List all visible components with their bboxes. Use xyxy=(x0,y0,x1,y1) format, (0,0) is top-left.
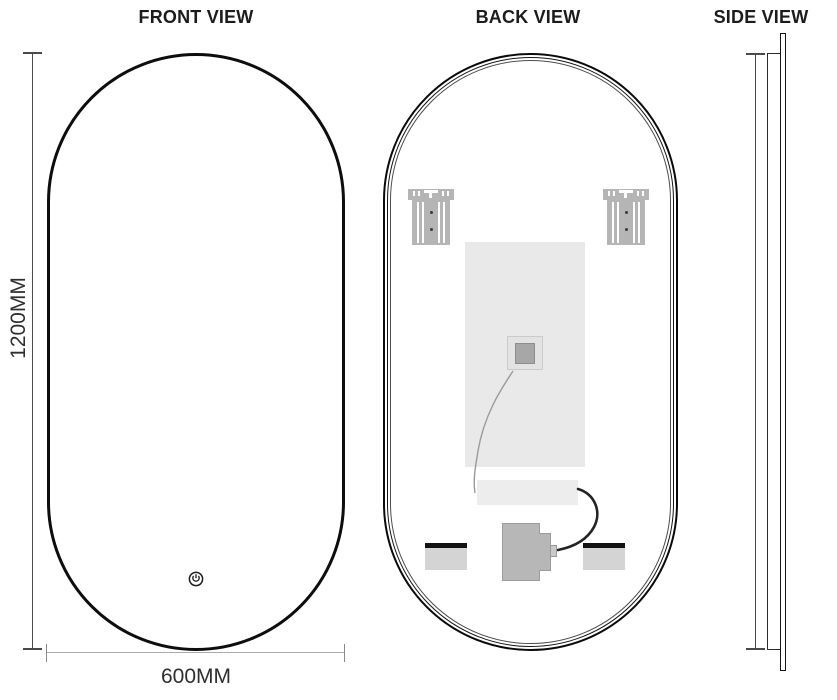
width-dimension-tick-left xyxy=(46,644,47,662)
power-icon xyxy=(188,571,204,587)
side-dimension-cap-bottom xyxy=(746,648,765,650)
side-view-title: SIDE VIEW xyxy=(714,7,809,28)
side-dimension-line xyxy=(755,54,756,650)
hanging-bar-left xyxy=(425,543,467,570)
width-dimension-tick-right xyxy=(344,644,345,662)
height-dimension-cap-top xyxy=(23,52,42,54)
sensor-wire xyxy=(474,371,513,493)
driver-connector xyxy=(550,545,557,557)
front-view-title: FRONT VIEW xyxy=(139,7,254,28)
side-dimension-cap-top xyxy=(746,53,765,55)
back-view xyxy=(383,53,678,651)
mirror-outline xyxy=(47,53,345,651)
height-dimension-cap-bottom xyxy=(23,648,42,650)
side-frame-profile xyxy=(767,53,781,650)
height-dimension-line xyxy=(32,53,33,650)
side-glass-profile xyxy=(780,33,786,671)
driver-box xyxy=(502,523,540,581)
width-dimension-line xyxy=(46,652,345,653)
hanging-bar-right xyxy=(583,543,625,570)
diagram-canvas: FRONT VIEW BACK VIEW SIDE VIEW 1200MM 60… xyxy=(0,0,837,700)
back-view-title: BACK VIEW xyxy=(476,7,581,28)
width-dimension-label: 600MM xyxy=(161,665,231,689)
power-wire xyxy=(558,489,597,550)
height-dimension-label: 1200MM xyxy=(7,277,31,359)
